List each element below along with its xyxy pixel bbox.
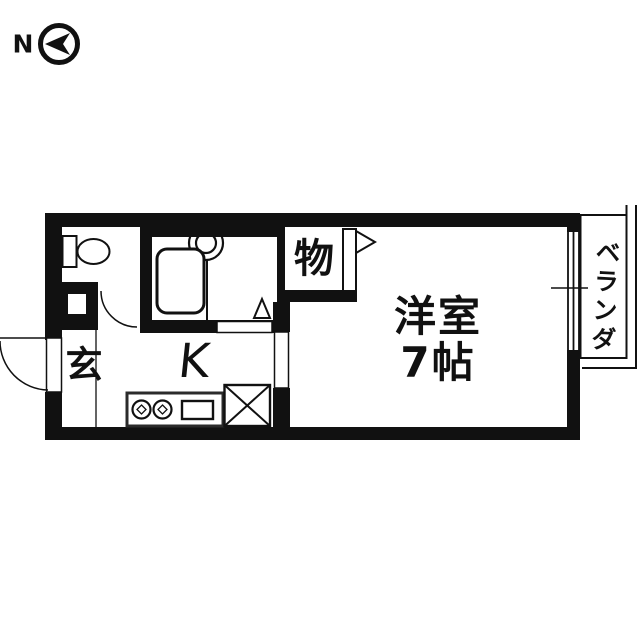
closet-door-panel xyxy=(343,229,356,291)
bathtub-fixture xyxy=(157,249,204,313)
label-genkan: 玄 xyxy=(66,346,103,387)
label-main-room: 洋室 7帖 xyxy=(394,294,482,386)
label-closet: 物 xyxy=(294,237,334,281)
entrance-door-arc xyxy=(0,338,48,390)
wall-nook xyxy=(67,293,87,315)
bath-door-triangle xyxy=(254,299,270,318)
toilet-door-arc xyxy=(101,291,137,327)
main-room-size: 7帖 xyxy=(394,340,482,386)
appliance-space-x xyxy=(225,385,271,426)
bath-door-opening xyxy=(217,322,272,333)
kitchen-sink xyxy=(182,401,213,419)
north-label: N xyxy=(13,30,34,58)
entrance-door-panel xyxy=(47,338,62,392)
main-room-name: 洋室 xyxy=(394,294,482,340)
label-kitchen: K xyxy=(176,336,212,388)
floorplan-page: { "compass": { "label": "N", "icon": "co… xyxy=(0,0,640,640)
sliding-door-veranda xyxy=(551,232,588,350)
floorplan-drawing xyxy=(0,0,640,640)
kitchen-room-door-panel xyxy=(275,332,289,388)
kitchen-counter xyxy=(127,393,223,426)
toilet-fixture xyxy=(63,236,110,267)
closet-door-swing-flag xyxy=(356,231,375,253)
label-veranda: ベランダ xyxy=(587,238,621,355)
compass-west-arrow-icon xyxy=(41,26,78,63)
